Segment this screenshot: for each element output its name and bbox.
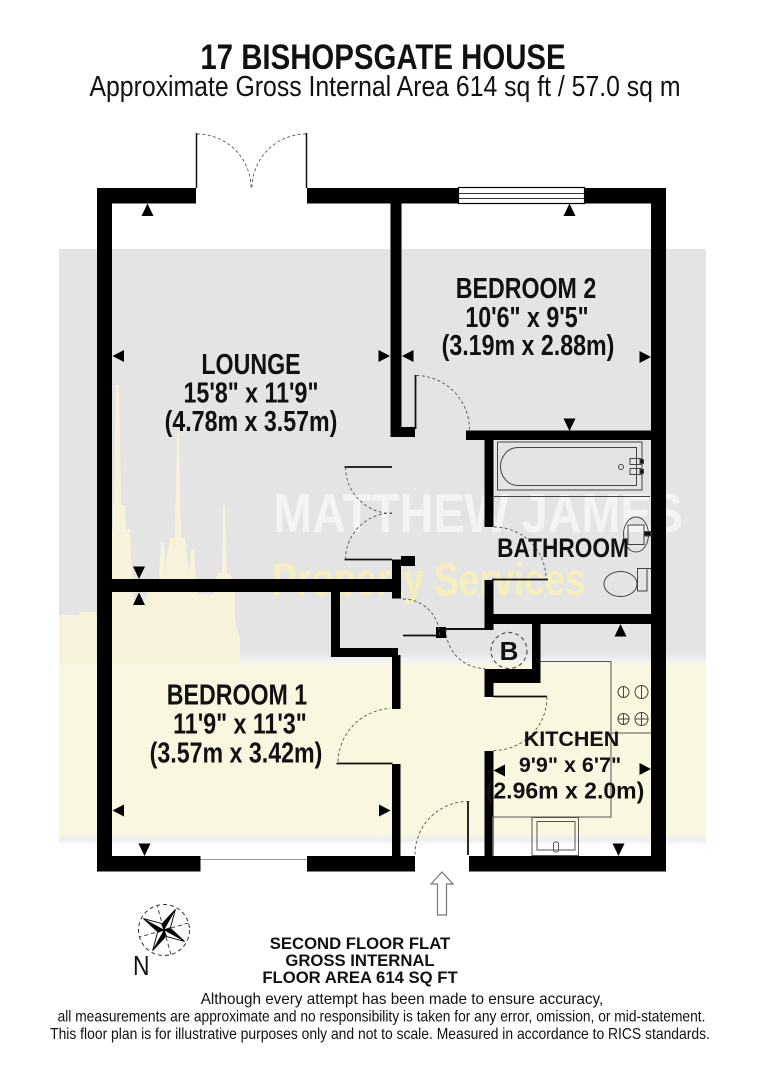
- svg-text:(3.19m x 2.88m): (3.19m x 2.88m): [442, 328, 615, 361]
- svg-text:Approximate Gross Internal Are: Approximate Gross Internal Area 614 sq f…: [89, 70, 680, 102]
- svg-text:(2.96m x 2.0m): (2.96m x 2.0m): [486, 778, 645, 804]
- svg-text:N: N: [133, 951, 149, 981]
- svg-text:(3.57m x 3.42m): (3.57m x 3.42m): [150, 736, 323, 769]
- svg-text:Although every attempt has bee: Although every attempt has been made to …: [201, 991, 604, 1008]
- svg-text:(4.78m x 3.57m): (4.78m x 3.57m): [165, 404, 338, 437]
- svg-text:B: B: [500, 636, 519, 666]
- svg-text:KITCHEN: KITCHEN: [524, 727, 620, 751]
- svg-text:BATHROOM: BATHROOM: [497, 533, 629, 563]
- svg-text:This floor plan is for illustr: This floor plan is for illustrative purp…: [50, 1026, 710, 1043]
- svg-text:9'9" x 6'7": 9'9" x 6'7": [519, 753, 621, 777]
- svg-text:all measurements are approxima: all measurements are approximate and no …: [58, 1009, 706, 1026]
- svg-text:FLOOR AREA 614 SQ FT: FLOOR AREA 614 SQ FT: [262, 968, 458, 987]
